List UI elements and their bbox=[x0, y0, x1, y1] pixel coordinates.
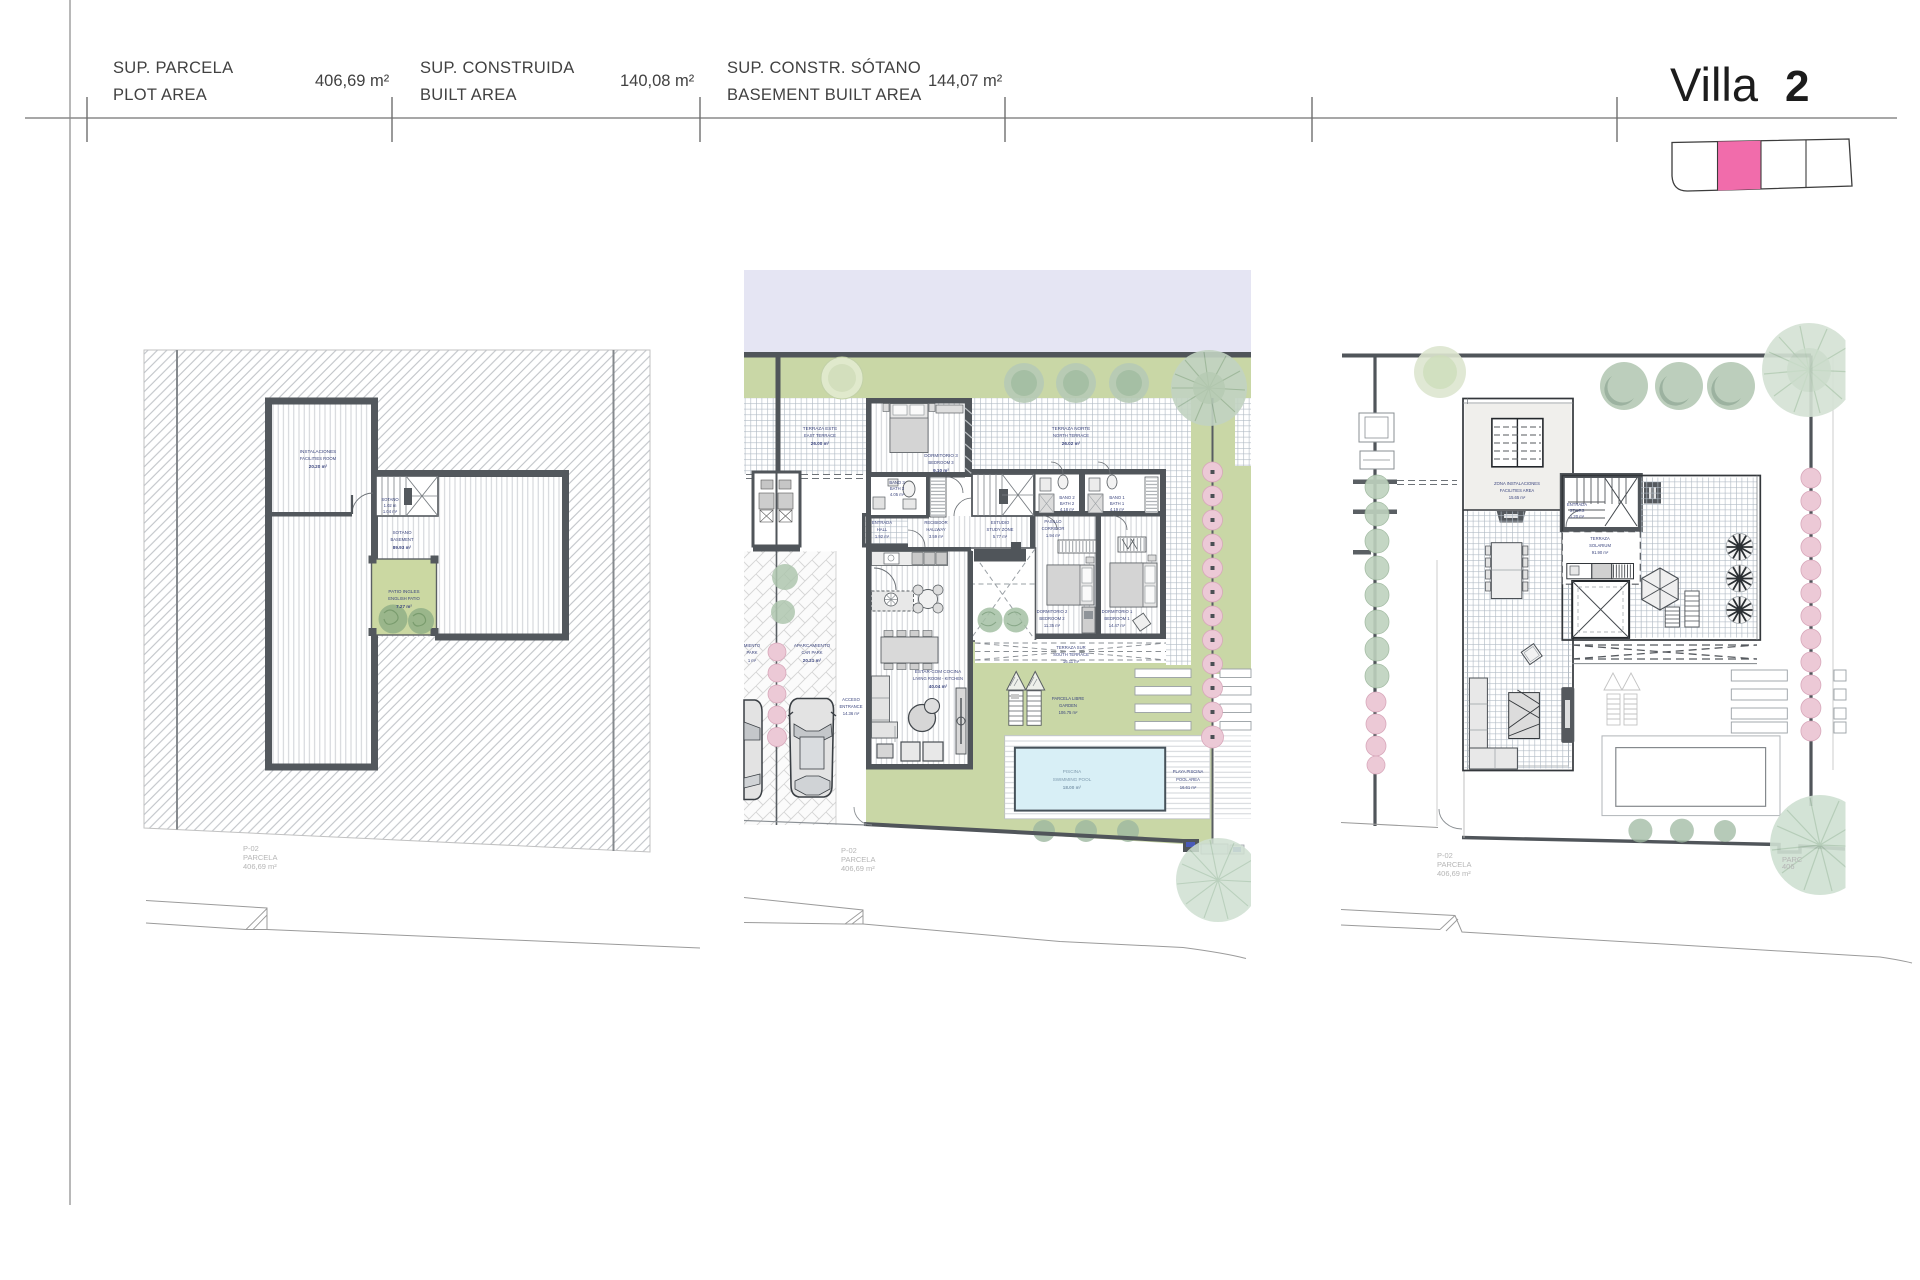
svg-text:ESTUDIO: ESTUDIO bbox=[991, 520, 1010, 525]
svg-text:STAIRS: STAIRS bbox=[1570, 508, 1585, 513]
svg-text:BEDROOM 1: BEDROOM 1 bbox=[1104, 616, 1130, 621]
svg-text:1.02 m: 1.02 m bbox=[384, 503, 397, 508]
svg-text:P-02: P-02 bbox=[841, 846, 857, 855]
svg-text:14.36 m²: 14.36 m² bbox=[843, 711, 860, 716]
svg-text:SOUTH TERRACE: SOUTH TERRACE bbox=[1053, 652, 1089, 657]
svg-text:CORRIDOR: CORRIDOR bbox=[1042, 526, 1065, 531]
svg-text:BATH 1: BATH 1 bbox=[1110, 501, 1125, 506]
svg-text:4.18 m²: 4.18 m² bbox=[1060, 507, 1075, 512]
svg-text:SWIMMING POOL: SWIMMING POOL bbox=[1053, 777, 1092, 782]
svg-text:BASEMENT: BASEMENT bbox=[390, 537, 413, 542]
svg-text:RECIBIDOR: RECIBIDOR bbox=[924, 520, 947, 525]
svg-text:20.21 m²: 20.21 m² bbox=[803, 658, 822, 663]
svg-text:15.65 m²: 15.65 m² bbox=[1509, 495, 1526, 500]
svg-text:ENTRADA: ENTRADA bbox=[1567, 502, 1587, 507]
svg-text:1.04 m²: 1.04 m² bbox=[383, 509, 398, 514]
svg-text:DORMITORIO 1: DORMITORIO 1 bbox=[1102, 609, 1133, 614]
svg-text:BEDROOM 3: BEDROOM 3 bbox=[928, 460, 954, 465]
svg-text:P-02: P-02 bbox=[243, 844, 259, 853]
svg-text:4.05 m²: 4.05 m² bbox=[890, 492, 905, 497]
svg-text:HALLWAY: HALLWAY bbox=[926, 527, 945, 532]
svg-text:26.00 m²: 26.00 m² bbox=[811, 441, 830, 446]
svg-text:PARK: PARK bbox=[746, 650, 757, 655]
svg-text:P-02: P-02 bbox=[1437, 851, 1453, 860]
svg-text:SUP. PARCELA: SUP. PARCELA bbox=[113, 59, 233, 77]
svg-text:PISCINA: PISCINA bbox=[1063, 769, 1082, 774]
svg-text:11.35 m²: 11.35 m² bbox=[1044, 623, 1061, 628]
svg-text:ESTAR-COM COCINA: ESTAR-COM COCINA bbox=[915, 669, 962, 674]
svg-text:406,69 m²: 406,69 m² bbox=[315, 72, 390, 90]
svg-text:BATH 2: BATH 2 bbox=[1060, 501, 1075, 506]
svg-text:1.20 m²: 1.20 m² bbox=[1570, 514, 1585, 519]
svg-text:26.02 m²: 26.02 m² bbox=[1062, 441, 1081, 446]
svg-text:14.47 m²: 14.47 m² bbox=[1109, 623, 1126, 628]
svg-text:18.00 m²: 18.00 m² bbox=[1063, 785, 1082, 790]
svg-text:91.90 m²: 91.90 m² bbox=[1592, 550, 1609, 555]
svg-text:TERRAZA: TERRAZA bbox=[1590, 536, 1610, 541]
svg-text:40.04 m²: 40.04 m² bbox=[929, 684, 948, 689]
svg-text:PLOT AREA: PLOT AREA bbox=[113, 86, 207, 104]
svg-text:EAST TERRACE: EAST TERRACE bbox=[804, 433, 836, 438]
svg-text:20.20 m²: 20.20 m² bbox=[309, 464, 328, 469]
svg-text:140,08 m²: 140,08 m² bbox=[620, 72, 695, 90]
svg-text:FACILITIES AREA: FACILITIES AREA bbox=[1500, 488, 1535, 493]
svg-text:9.10 m²: 9.10 m² bbox=[933, 468, 949, 473]
svg-text:DORMITORIO 3: DORMITORIO 3 bbox=[924, 453, 958, 458]
svg-text:POOL AREA: POOL AREA bbox=[1176, 777, 1200, 782]
svg-text:BUILT AREA: BUILT AREA bbox=[420, 86, 517, 104]
svg-text:SOTANO: SOTANO bbox=[392, 530, 411, 535]
svg-text:BANO 2: BANO 2 bbox=[1059, 495, 1075, 500]
svg-text:406,69 m²: 406,69 m² bbox=[243, 862, 277, 871]
svg-text:HALL: HALL bbox=[877, 527, 888, 532]
svg-text:PARCELA: PARCELA bbox=[841, 855, 875, 864]
svg-text:ZONA INSTALACIONES: ZONA INSTALACIONES bbox=[1494, 481, 1540, 486]
svg-text:16.61 m²: 16.61 m² bbox=[1180, 785, 1197, 790]
svg-text:ENTRANCE: ENTRANCE bbox=[839, 704, 862, 709]
svg-text:16.11 m²: 16.11 m² bbox=[1063, 659, 1080, 664]
svg-text:DORMITORIO 2: DORMITORIO 2 bbox=[1037, 609, 1068, 614]
svg-text:144,07 m²: 144,07 m² bbox=[928, 72, 1003, 90]
svg-text:BEDROOM 2: BEDROOM 2 bbox=[1039, 616, 1065, 621]
svg-text:GARDEN: GARDEN bbox=[1059, 703, 1077, 708]
svg-text:ACCESO: ACCESO bbox=[842, 697, 860, 702]
svg-text:406: 406 bbox=[1782, 862, 1795, 871]
svg-text:MIENTO: MIENTO bbox=[744, 643, 761, 648]
svg-text:TERRAZA NORTE: TERRAZA NORTE bbox=[1052, 426, 1090, 431]
svg-text:SOTANO: SOTANO bbox=[381, 497, 399, 502]
svg-text:TERRAZA SUR: TERRAZA SUR bbox=[1056, 645, 1085, 650]
svg-text:89.93 m²: 89.93 m² bbox=[393, 545, 412, 550]
svg-text:APARCAMIENTO: APARCAMIENTO bbox=[794, 643, 831, 648]
svg-text:3.59 m²: 3.59 m² bbox=[929, 534, 944, 539]
svg-text:1.92 m²: 1.92 m² bbox=[875, 534, 890, 539]
svg-text:PARCELA: PARCELA bbox=[243, 853, 277, 862]
svg-text:PATIO INGLES: PATIO INGLES bbox=[388, 589, 419, 594]
svg-text:BANO 3: BANO 3 bbox=[889, 480, 905, 485]
svg-text:BANO 1: BANO 1 bbox=[1109, 495, 1125, 500]
svg-text:106.75 m²: 106.75 m² bbox=[1059, 710, 1078, 715]
svg-text:PARCELA: PARCELA bbox=[1437, 860, 1471, 869]
svg-text:SUP. CONSTR. SÓTANO: SUP. CONSTR. SÓTANO bbox=[727, 58, 921, 77]
svg-text:5.77 m²: 5.77 m² bbox=[993, 534, 1008, 539]
svg-text:INSTALACIONES: INSTALACIONES bbox=[300, 449, 336, 454]
svg-text:SOLARIUM: SOLARIUM bbox=[1589, 543, 1611, 548]
svg-text:TERRAZA ESTE: TERRAZA ESTE bbox=[803, 426, 837, 431]
svg-text:FACILITIES ROOM: FACILITIES ROOM bbox=[300, 456, 337, 461]
svg-text:ENTRADA: ENTRADA bbox=[872, 520, 892, 525]
svg-text:2: 2 bbox=[1785, 62, 1809, 111]
svg-text:406,69 m²: 406,69 m² bbox=[1437, 869, 1471, 878]
svg-text:406,69 m²: 406,69 m² bbox=[841, 864, 875, 873]
svg-text:4.19 m²: 4.19 m² bbox=[1110, 507, 1125, 512]
svg-text:STUDY ZONE: STUDY ZONE bbox=[987, 527, 1014, 532]
svg-text:Villa: Villa bbox=[1670, 58, 1759, 111]
svg-text:NORTH TERRACE: NORTH TERRACE bbox=[1053, 433, 1089, 438]
svg-text:PLAYA PISCINA: PLAYA PISCINA bbox=[1173, 769, 1204, 774]
svg-text:CAR PARK: CAR PARK bbox=[801, 650, 822, 655]
svg-text:SUP. CONSTRUIDA: SUP. CONSTRUIDA bbox=[420, 59, 575, 77]
svg-text:PASILLO: PASILLO bbox=[1044, 519, 1062, 524]
svg-text:1.94 m²: 1.94 m² bbox=[1046, 533, 1061, 538]
svg-text:1 m²: 1 m² bbox=[748, 658, 757, 663]
svg-text:BATH 3: BATH 3 bbox=[890, 486, 905, 491]
svg-text:BASEMENT BUILT AREA: BASEMENT BUILT AREA bbox=[727, 86, 922, 104]
svg-text:PARCELA LIBRE: PARCELA LIBRE bbox=[1052, 696, 1084, 701]
svg-text:LIVING ROOM - KITCHEN: LIVING ROOM - KITCHEN bbox=[913, 676, 963, 681]
svg-text:7.27 m²: 7.27 m² bbox=[396, 604, 412, 609]
svg-text:ENGLISH PATIO: ENGLISH PATIO bbox=[388, 596, 420, 601]
